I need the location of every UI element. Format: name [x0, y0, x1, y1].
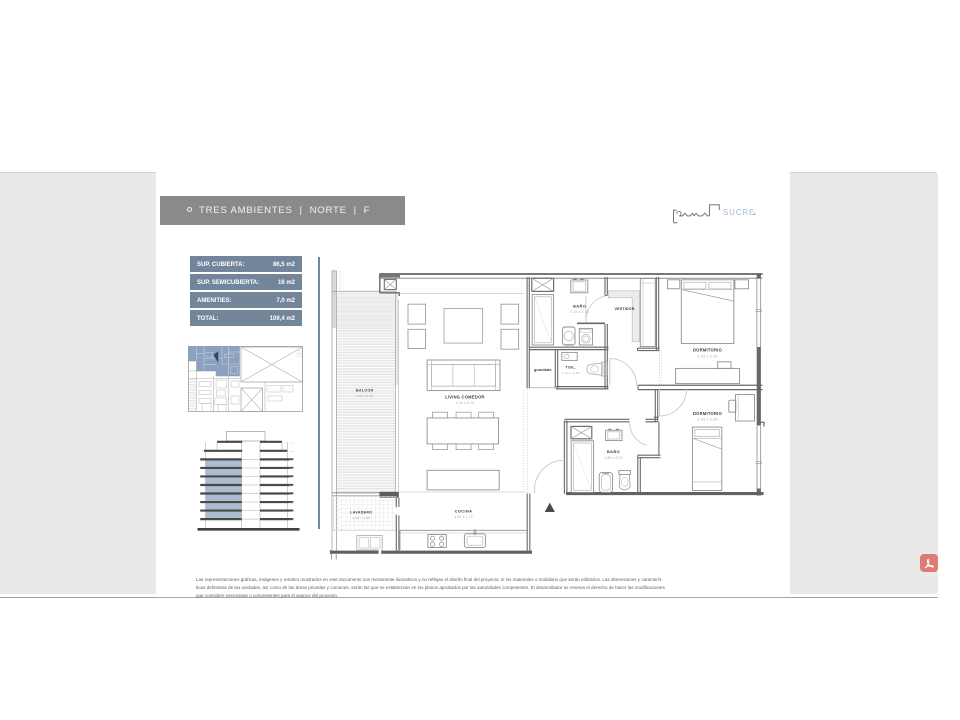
svg-text:2.25 x 2.15: 2.25 x 2.15 — [570, 310, 589, 314]
svg-text:2.06 x 6.50: 2.06 x 6.50 — [356, 394, 374, 398]
svg-text:TOIL.: TOIL. — [565, 366, 576, 370]
svg-text:guardado: guardado — [534, 368, 552, 372]
svg-text:VESTIDOR: VESTIDOR — [614, 307, 634, 311]
svg-text:3.60 x 3.80: 3.60 x 3.80 — [697, 418, 718, 422]
svg-text:BALCON: BALCON — [356, 388, 374, 392]
svg-text:DORMITORIO: DORMITORIO — [693, 348, 723, 353]
svg-text:COCINA: COCINA — [455, 509, 473, 514]
svg-text:1.50 x 3.00: 1.50 x 3.00 — [604, 456, 623, 460]
svg-text:BAÑO: BAÑO — [607, 449, 620, 454]
svg-text:1.00 x 1.60: 1.00 x 1.60 — [353, 516, 371, 520]
svg-text:3.60 x 3.30: 3.60 x 3.30 — [697, 354, 718, 358]
svg-text:4.00 x 1.70: 4.00 x 1.70 — [454, 515, 473, 519]
svg-text:LIVING COMEDOR: LIVING COMEDOR — [445, 394, 484, 399]
svg-text:4.00 x 6.70: 4.00 x 6.70 — [455, 401, 474, 405]
svg-text:LAVADERO: LAVADERO — [350, 510, 372, 514]
svg-text:BAÑO: BAÑO — [573, 303, 586, 308]
svg-text:1.10 x 1.90: 1.10 x 1.90 — [562, 371, 580, 375]
svg-text:DORMITORIO: DORMITORIO — [693, 411, 723, 416]
